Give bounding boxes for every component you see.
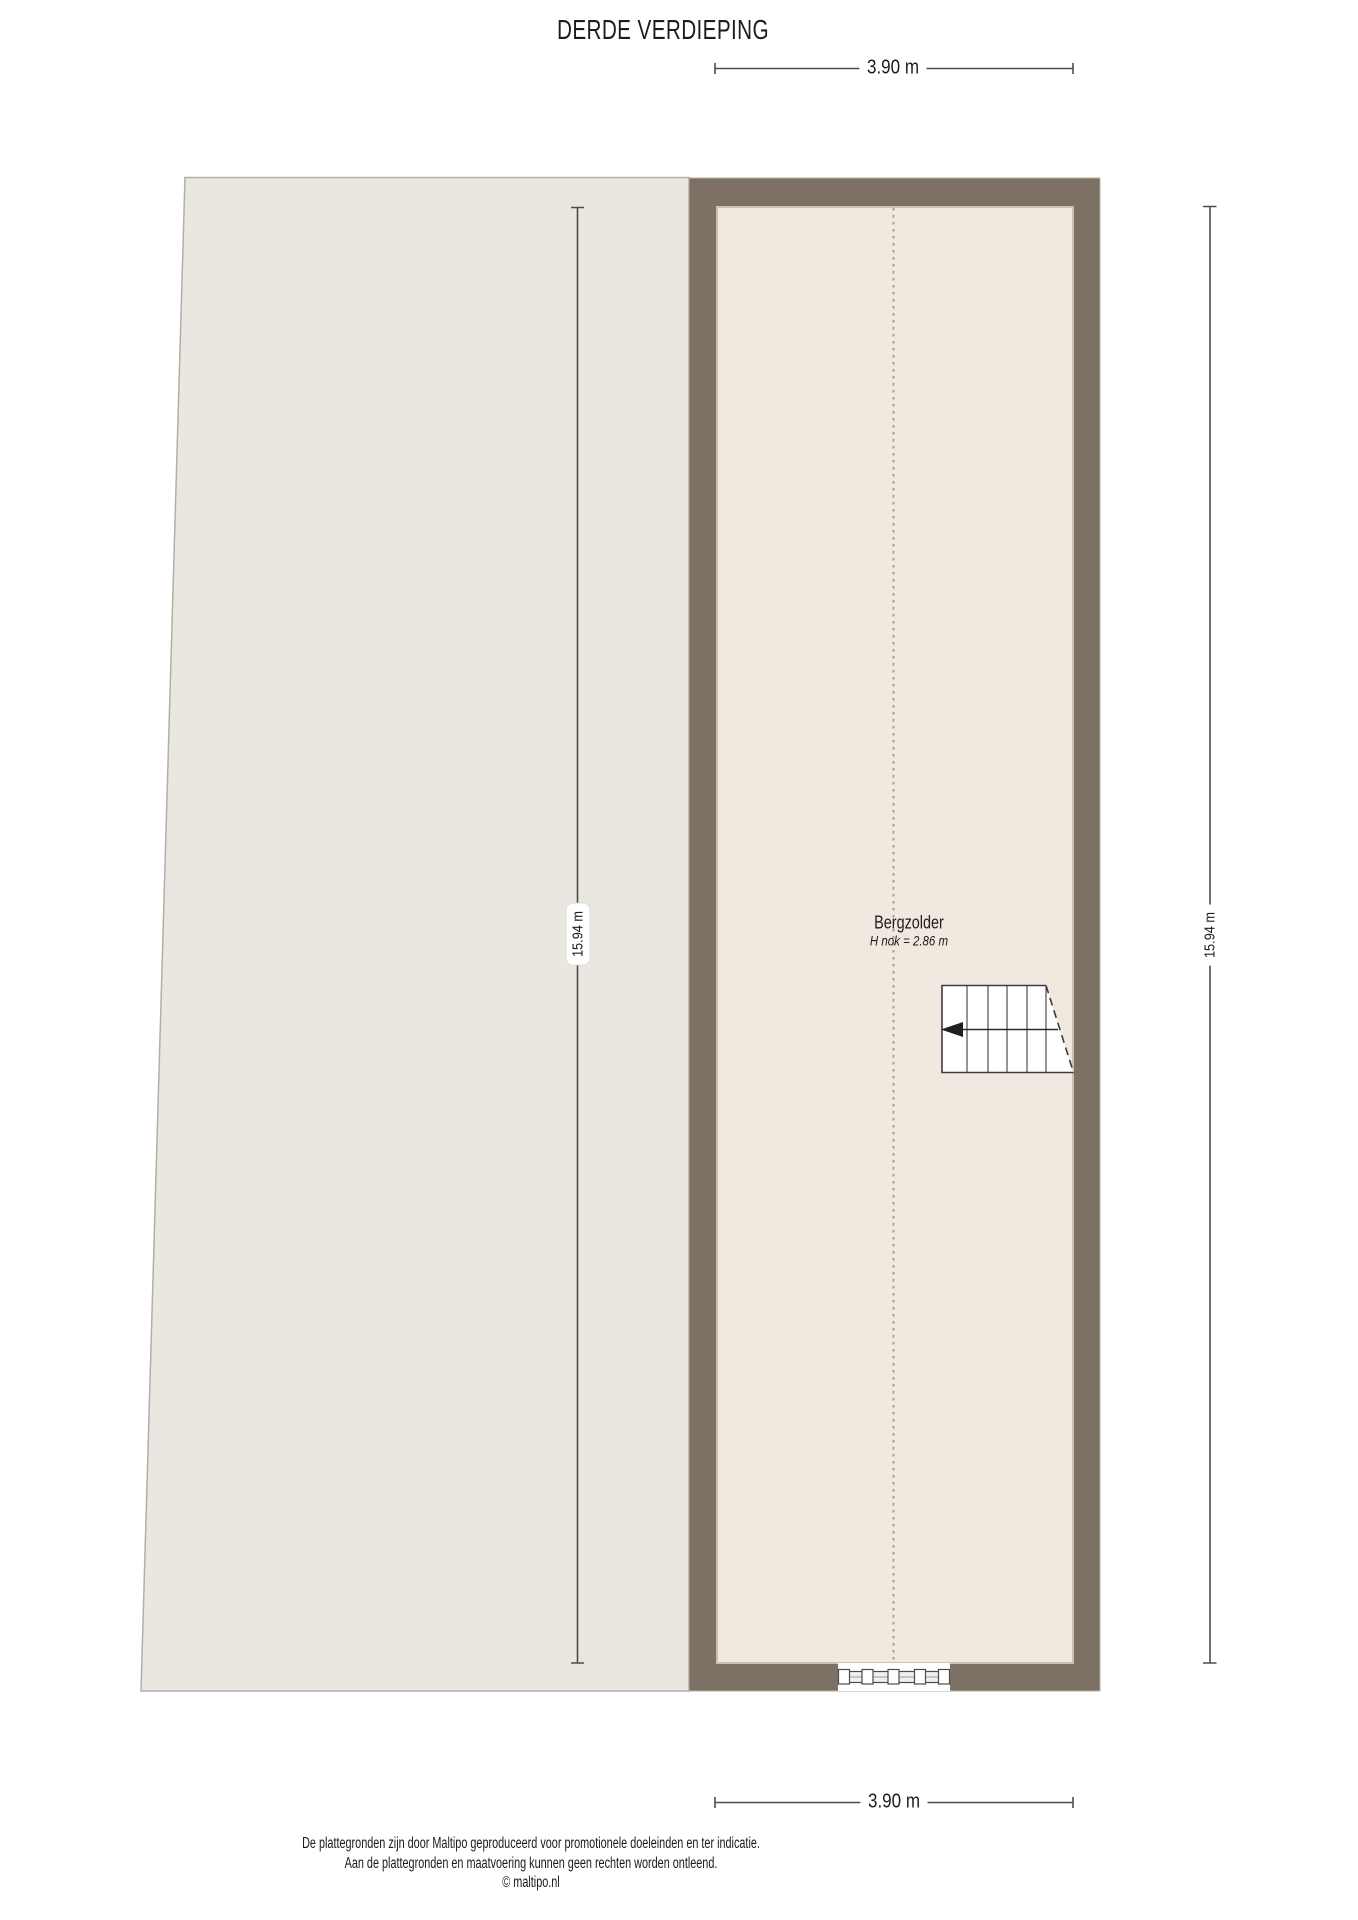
floorplan-drawing <box>0 0 1358 1920</box>
dimension-label-top: 3.90 m <box>859 56 926 81</box>
footer-line-2: Aan de plattegronden en maatvoering kunn… <box>302 1854 760 1874</box>
window-post <box>888 1670 899 1685</box>
room-ridge-height-note: H nok = 2.86 m <box>870 934 948 949</box>
window-post <box>915 1670 926 1685</box>
dimension-label-right: 15.94 m <box>1199 904 1220 965</box>
floorplan-page: DERDE VERDIEPING 3.90 m 3.90 m 15.94 m 1… <box>0 0 1358 1920</box>
footer-disclaimer: De plattegronden zijn door Maltipo gepro… <box>302 1834 760 1893</box>
footer-copyright: © maltipo.nl <box>302 1873 760 1893</box>
dimension-label-left-inner: 15.94 m <box>566 902 591 965</box>
footer-line-1: De plattegronden zijn door Maltipo gepro… <box>302 1834 760 1854</box>
window-post <box>862 1670 873 1685</box>
window-post <box>939 1670 950 1685</box>
room-label: Bergzolder <box>874 913 944 934</box>
page-title: DERDE VERDIEPING <box>557 14 769 46</box>
roof-area-shape <box>141 178 689 1692</box>
window-post <box>839 1670 850 1685</box>
window-symbol <box>838 1663 950 1691</box>
dimension-label-bottom: 3.90 m <box>860 1790 927 1815</box>
